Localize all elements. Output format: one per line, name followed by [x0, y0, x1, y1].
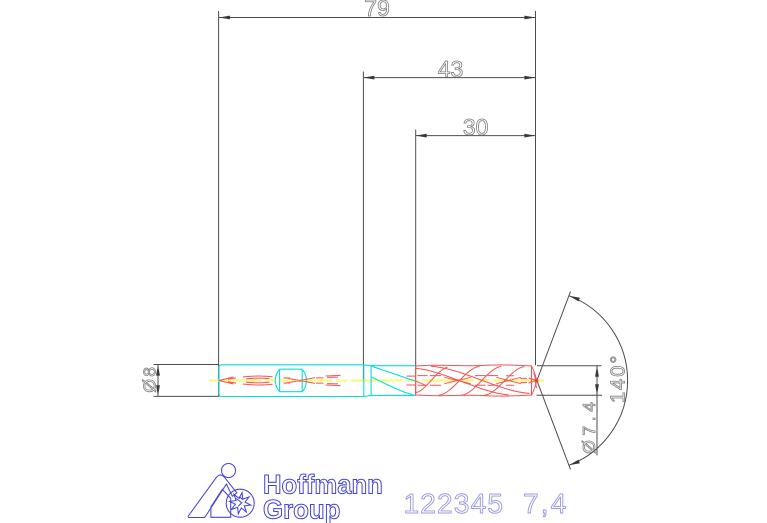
svg-text:Group: Group — [263, 494, 340, 523]
svg-text:30: 30 — [463, 114, 489, 140]
svg-text:7,4: 7,4 — [523, 488, 569, 519]
svg-text:Ø7.4: Ø7.4 — [579, 397, 599, 453]
svg-text:79: 79 — [364, 0, 390, 21]
svg-text:43: 43 — [438, 56, 464, 82]
svg-text:Ø8: Ø8 — [139, 365, 159, 393]
svg-text:122345: 122345 — [404, 488, 505, 519]
svg-text:140°: 140° — [608, 354, 630, 403]
